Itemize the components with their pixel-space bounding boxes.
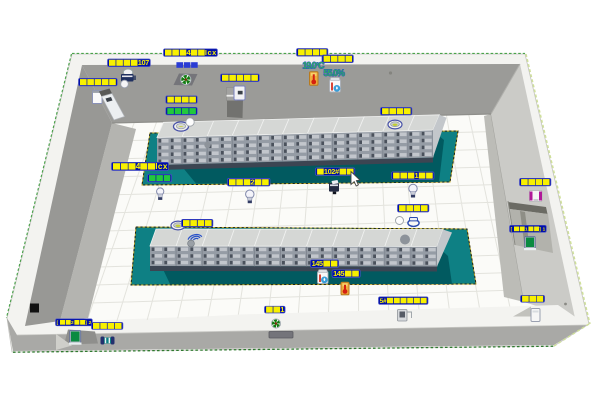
svg-text:1: 1: [280, 305, 284, 314]
svg-text:2: 2: [251, 178, 255, 187]
svg-text:145: 145: [333, 269, 344, 278]
svg-text:102#: 102#: [324, 167, 339, 176]
svg-text:2: 2: [71, 320, 74, 325]
svg-text:107: 107: [138, 58, 149, 67]
svg-text:1: 1: [415, 171, 419, 180]
svg-text:]1: ]1: [539, 227, 545, 232]
svg-text:4: 4: [136, 162, 141, 171]
svg-text:145: 145: [312, 259, 323, 268]
svg-text:5#: 5#: [380, 298, 387, 305]
svg-text:Icx: Icx: [155, 162, 168, 171]
svg-text:Icx: Icx: [205, 48, 217, 57]
svg-text:]2: ]2: [85, 320, 91, 325]
svg-text:19.0°C: 19.0°C: [303, 60, 326, 70]
svg-text:1: 1: [525, 227, 528, 232]
svg-text:55.0%: 55.0%: [324, 68, 346, 78]
